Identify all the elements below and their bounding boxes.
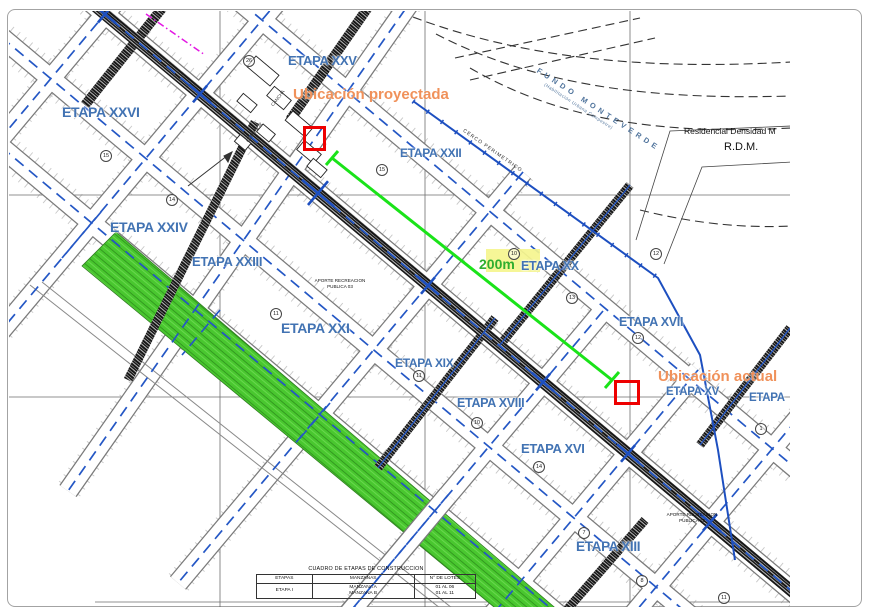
label-etapa-xiii: ETAPA XIII [576,539,640,554]
table-header-lotes: N° DE LOTES [414,575,475,584]
label-etapa-cut-right: ETAPA [749,392,786,404]
block-number: 10 [471,417,483,429]
label-rdm: R.D.M. [724,141,758,153]
label-etapa-xxiv: ETAPA XXIV [110,219,188,235]
label-etapa-xxii: ETAPA XXII [400,146,461,160]
block-number: 1 [755,423,767,435]
block-number: 8 [636,575,648,587]
block-number: 7 [578,527,590,539]
block-number: 11 [270,308,282,320]
block-number: 26 [243,55,255,67]
block-number: 11 [413,370,425,382]
table-manzana-b: MANZANA B [315,591,412,597]
construction-stages-table: CUADRO DE ETAPAS DE CONSTRUCCION ETAPAS … [256,566,476,599]
label-etapa-xviii: ETAPA XVIII [457,396,524,410]
annotation-current-location[interactable]: Ubicación actual [658,368,777,385]
plan-viewer: Ubicación proyectada Ubicación actual 20… [0,0,872,612]
table-cell-lotes: 01 AL 06 01 AL 11 [414,583,475,598]
label-residencial: Residencial Densidad M [684,126,790,136]
label-etapa-xv: ETAPA XV [666,386,719,398]
label-etapa-xix: ETAPA XIX [395,356,453,370]
block-number: 13 [566,292,578,304]
block-number: 12 [650,248,662,260]
label-etapa-xxv: ETAPA XXV [288,53,357,68]
marker-current-location[interactable] [614,380,640,405]
block-number: 14 [533,461,545,473]
table-title: CUADRO DE ETAPAS DE CONSTRUCCION [256,566,476,572]
label-etapa-xxvi: ETAPA XXVI [62,104,140,120]
label-etapa-xxi: ETAPA XXI [281,320,350,336]
block-number: 15 [100,150,112,162]
label-aporte-02-l2: PUBLICA 02 [650,518,734,524]
table-header-manzanas: MANZANAS [312,575,414,584]
block-number: 11 [718,592,730,604]
table-lotes-b: 01 AL 11 [417,591,473,597]
label-aporte-03-l2: PUBLICA 03 [298,284,382,290]
label-etapa-xxiii: ETAPA XXIII [192,254,262,269]
block-number: 15 [376,164,388,176]
table-header-etapas: ETAPAS [257,575,313,584]
label-etapa-xvi: ETAPA XVI [521,441,585,456]
table-cell-etapa: ETAPA I [257,583,313,598]
table-cell-manzanas: MANZANA A MANZANA B [312,583,414,598]
annotation-projected-location[interactable]: Ubicación proyectada [293,86,449,103]
marker-projected-location[interactable] [303,126,326,151]
block-number: 10 [508,248,520,260]
block-number: 14 [166,194,178,206]
label-etapa-xx: ETAPA XX [521,259,579,273]
block-number: 12 [632,332,644,344]
label-etapa-xvii: ETAPA XVII [619,315,683,329]
